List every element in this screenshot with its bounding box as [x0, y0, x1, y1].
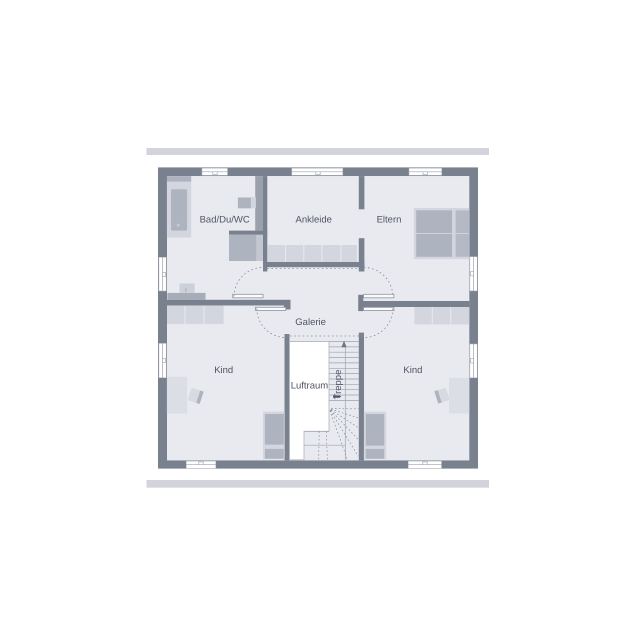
svg-text:Kind: Kind	[214, 365, 233, 376]
svg-text:Treppe: Treppe	[333, 370, 344, 400]
svg-text:Eltern: Eltern	[377, 214, 402, 225]
svg-text:Ankleide: Ankleide	[296, 214, 332, 225]
svg-text:Bad/Du/WC: Bad/Du/WC	[200, 214, 250, 225]
svg-text:Luftraum: Luftraum	[291, 380, 329, 391]
svg-text:Galerie: Galerie	[295, 317, 326, 328]
svg-text:Kind: Kind	[403, 365, 422, 376]
